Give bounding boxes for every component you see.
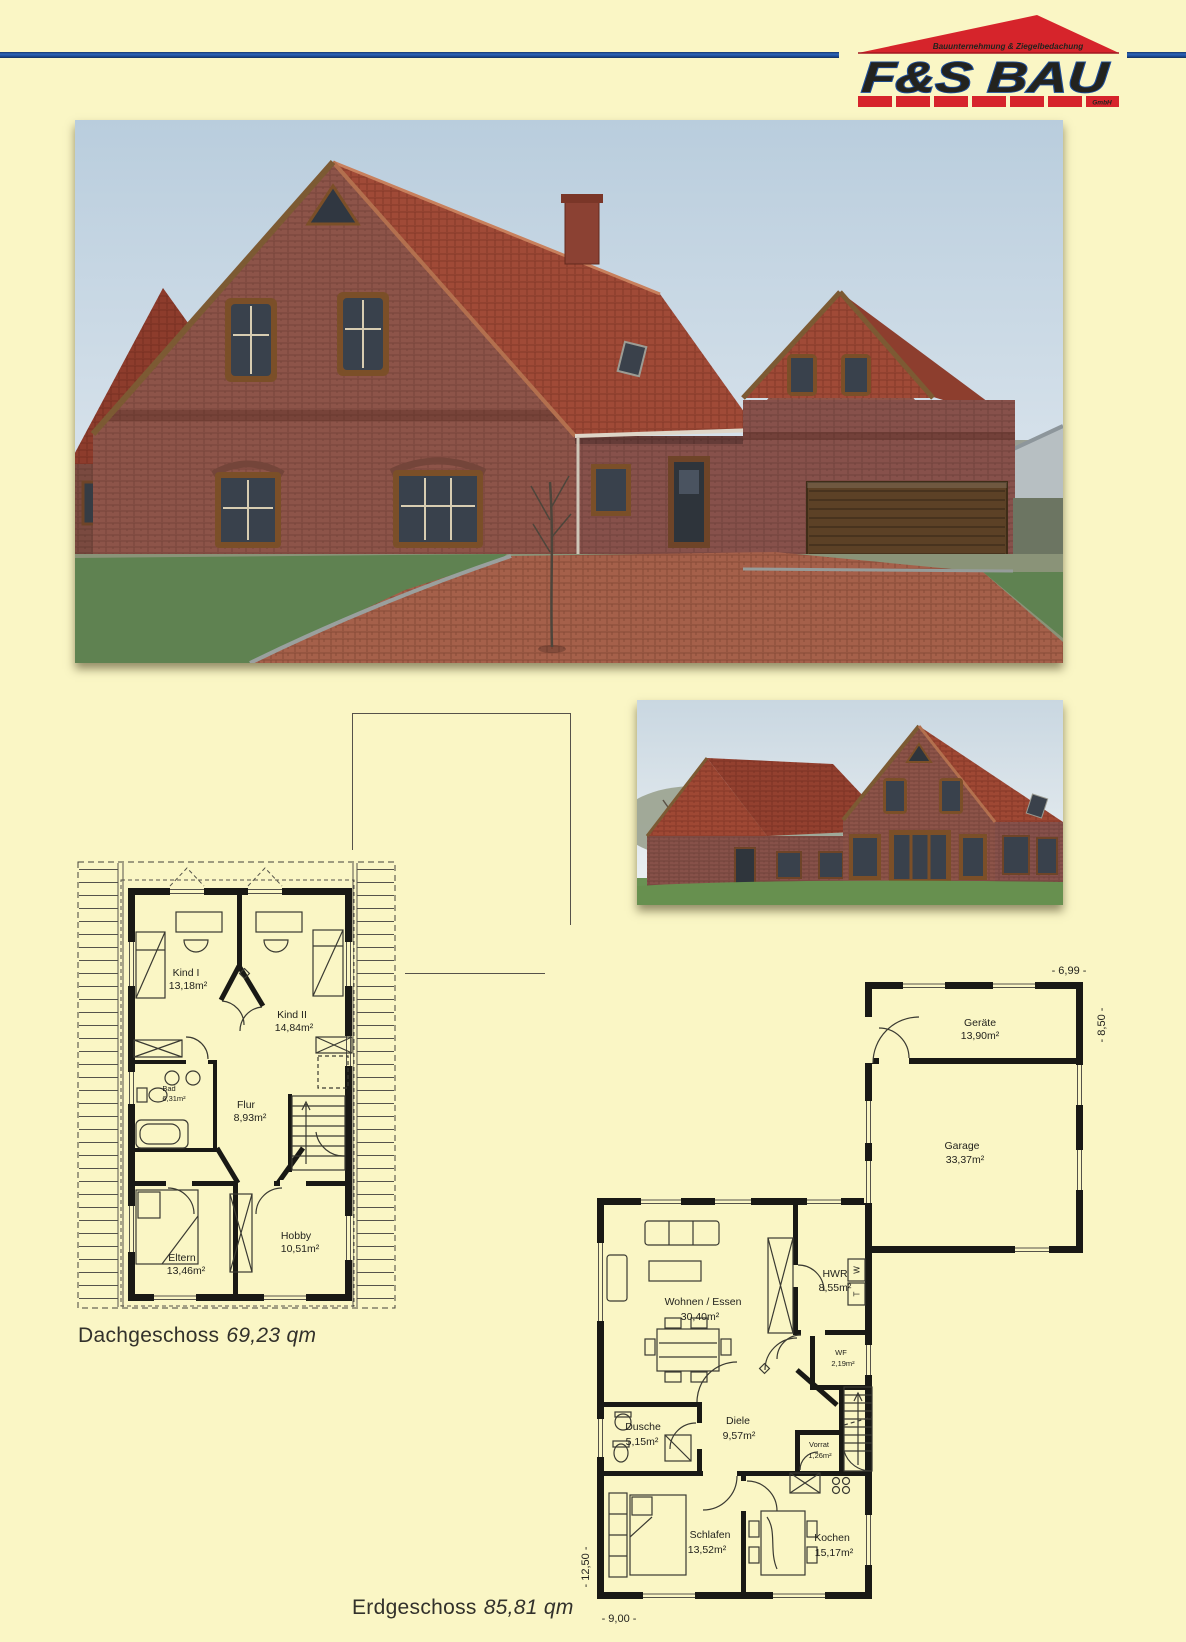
room-label-flur: Flur: [237, 1099, 256, 1111]
knee-wall-hatch-left: [79, 863, 118, 1307]
room-label-hobby: Hobby: [281, 1230, 312, 1242]
room-label-eltern: Eltern: [168, 1252, 196, 1264]
logo-tagline: Bauunternehmung & Ziegelbedachung: [933, 42, 1084, 51]
knee-wall-hatch-right: [357, 863, 394, 1307]
upper-window: [337, 292, 389, 376]
upper-window: [225, 298, 277, 382]
room-label-dusche: Dusche: [625, 1421, 661, 1433]
garage-gable-window: [841, 354, 871, 396]
svg-text:8,93m²: 8,93m²: [234, 1112, 267, 1124]
main-house-photo: [75, 120, 1063, 663]
dim-garage-depth: - 8,50 -: [1096, 1007, 1108, 1042]
header-rule-left: [0, 52, 839, 58]
svg-text:15,17m²: 15,17m²: [815, 1547, 854, 1559]
side-window: [591, 464, 631, 516]
svg-text:30,40m²: 30,40m²: [681, 1311, 720, 1323]
dachgeschoss-caption-name: Dachgeschoss: [78, 1324, 219, 1347]
room-label-kochen: Kochen: [814, 1532, 850, 1544]
lower-windows: [849, 830, 987, 884]
svg-text:1,26m²: 1,26m²: [808, 1451, 832, 1460]
dryer-label: T: [853, 1291, 862, 1296]
dim-house-depth: - 12,50 -: [580, 1546, 592, 1587]
erdgeschoss-floorplan: Geräte 13,90m² Garage 33,37m² Wohnen / E…: [545, 925, 1125, 1635]
svg-text:13,90m²: 13,90m²: [961, 1030, 1000, 1042]
logo-name: F&S BAU: [860, 54, 1111, 102]
ground-window: [213, 464, 283, 548]
chimney: [561, 194, 603, 264]
svg-text:13,46m²: 13,46m²: [167, 1265, 206, 1277]
svg-text:2,19m²: 2,19m²: [831, 1359, 855, 1368]
dachgeschoss-floorplan: Kind I 13,18m² Kind II 14,84m² Bad 6,31m…: [70, 850, 405, 1315]
svg-text:10,51m²: 10,51m²: [281, 1243, 320, 1255]
ground-window: [391, 461, 485, 548]
secondary-house-photo: [637, 700, 1063, 905]
washer-label: W: [853, 1266, 862, 1274]
company-logo: Bauunternehmung & Ziegelbedachung F&S BA…: [830, 4, 1135, 108]
svg-text:8,55m²: 8,55m²: [819, 1282, 852, 1294]
logo-suffix: GmbH: [1092, 100, 1112, 107]
room-label-schlafen: Schlafen: [690, 1529, 731, 1541]
svg-text:13,52m²: 13,52m²: [688, 1544, 727, 1556]
erdgeschoss-caption-area: 85,81 qm: [484, 1596, 574, 1619]
dachgeschoss-caption: Dachgeschoss69,23 qm: [78, 1324, 316, 1348]
logo-brick-row: [858, 96, 1119, 107]
wing-door: [735, 848, 755, 886]
room-label-vorrat: Vorrat: [809, 1440, 830, 1449]
entrance-door: [668, 456, 710, 548]
svg-text:6,31m²: 6,31m²: [162, 1094, 186, 1103]
dim-garage-width: - 6,99 -: [1052, 965, 1087, 977]
room-label-wf: WF: [835, 1348, 847, 1357]
room-label-wohnen: Wohnen / Essen: [665, 1296, 742, 1308]
header-rule-right: [1127, 52, 1186, 58]
svg-text:13,18m²: 13,18m²: [169, 980, 208, 992]
room-label-hwr: HWR: [822, 1268, 847, 1280]
garage-gable-window: [787, 354, 817, 396]
room-label-kind2: Kind II: [277, 1009, 307, 1021]
erdgeschoss-caption-name: Erdgeschoss: [352, 1596, 477, 1619]
room-label-garage: Garage: [944, 1140, 979, 1152]
erdgeschoss-caption: Erdgeschoss85,81 qm: [352, 1596, 574, 1620]
room-label-bad: Bad: [162, 1084, 175, 1093]
room-label-diele: Diele: [726, 1415, 750, 1427]
dachgeschoss-caption-area: 69,23 qm: [226, 1324, 316, 1347]
lawn-front: [637, 881, 1063, 905]
brochure-page: Bauunternehmung & Ziegelbedachung F&S BA…: [0, 0, 1186, 1642]
svg-text:9,57m²: 9,57m²: [723, 1430, 756, 1442]
room-label-kind1: Kind I: [173, 967, 200, 979]
svg-text:14,84m²: 14,84m²: [275, 1022, 314, 1034]
svg-text:33,37m²: 33,37m²: [946, 1154, 985, 1166]
room-label-geraete: Geräte: [964, 1017, 996, 1029]
dim-house-width: - 9,00 -: [602, 1613, 637, 1625]
svg-text:5,15m²: 5,15m²: [626, 1436, 659, 1448]
